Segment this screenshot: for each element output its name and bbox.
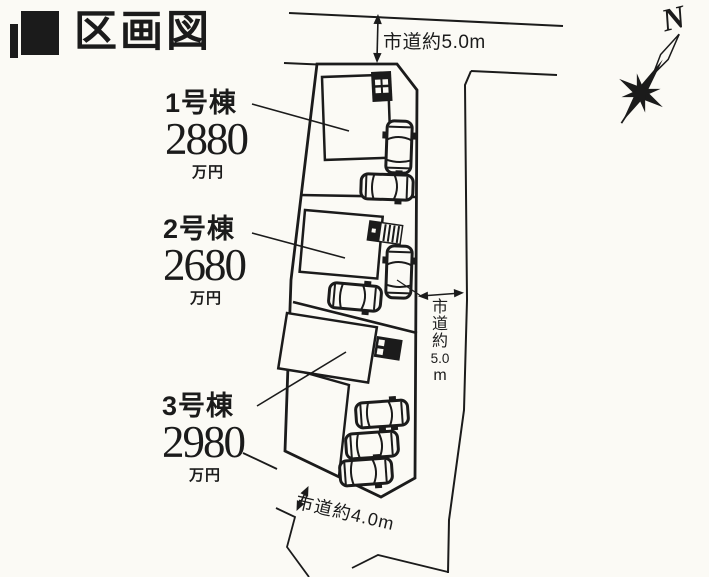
car-icon	[381, 245, 417, 298]
lot3-price-unit: 万円	[189, 464, 244, 485]
car-icon	[360, 169, 413, 205]
right-road-label: 市 道 約 5.0 m	[427, 299, 453, 384]
lot2-price-unit: 万円	[190, 287, 245, 308]
lot2-price: 2680	[163, 245, 245, 286]
lot1-label: 1号棟 2880 万円	[165, 88, 247, 182]
top-road-label: 市道約5.0m	[383, 27, 486, 54]
building-2-utility-icon	[367, 221, 402, 244]
title-block: 区画図	[8, 6, 212, 62]
car-icon	[328, 278, 383, 316]
building-3-utility-icon	[374, 336, 403, 361]
plan-canvas: 区画図 1号棟 2880 万円 2号棟 2680 万円 3号棟 2980 万円 …	[0, 0, 709, 577]
site-plan-drawing	[0, 0, 709, 577]
lot3-price: 2980	[162, 422, 244, 463]
car-icon	[355, 395, 409, 433]
lot1-price-unit: 万円	[192, 161, 247, 182]
compass-icon	[598, 19, 703, 139]
building-1-utility-icon	[371, 71, 393, 102]
page-title: 区画図	[74, 6, 212, 58]
building-3	[278, 313, 377, 383]
lot2-label: 2号棟 2680 万円	[163, 214, 245, 308]
car-icon	[381, 120, 417, 173]
top-road-width-arrow	[373, 14, 382, 63]
title-square-icon	[8, 6, 70, 62]
lot1-price: 2880	[165, 119, 247, 160]
parking-strip-boundary	[303, 372, 349, 476]
lot3-label: 3号棟 2980 万円	[162, 391, 244, 485]
car-icon	[339, 453, 393, 491]
